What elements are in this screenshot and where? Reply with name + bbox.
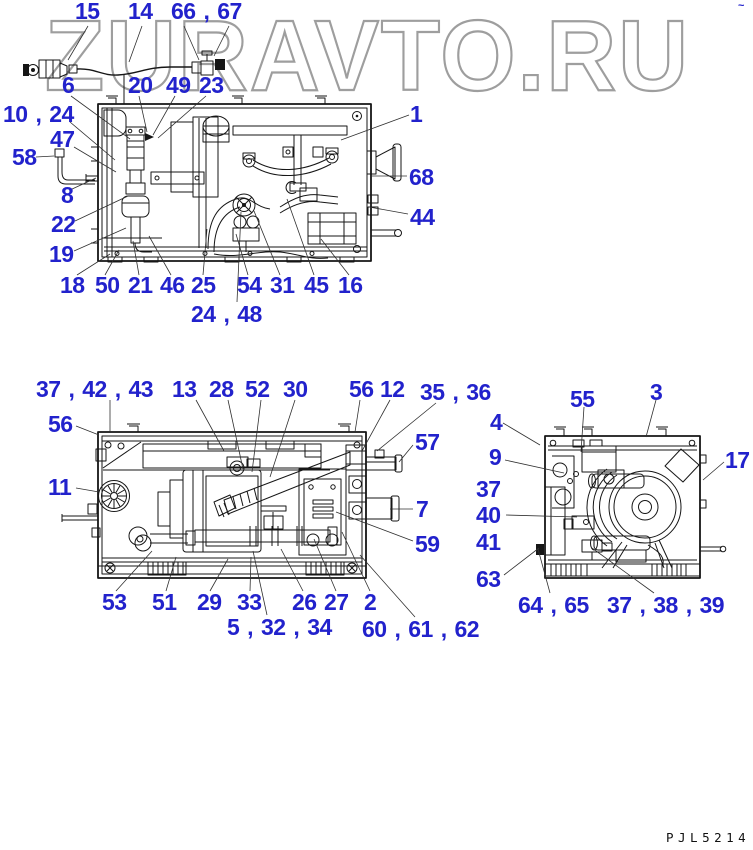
callout-45: 45 bbox=[304, 274, 329, 297]
callout-5-32-34: 5 , 32 , 34 bbox=[227, 616, 332, 639]
callout-27: 27 bbox=[324, 591, 349, 614]
callout-31: 31 bbox=[270, 274, 295, 297]
callout-47: 47 bbox=[50, 128, 75, 151]
parts-diagram-artwork: ZURAVTO.RU bbox=[0, 0, 753, 850]
callout-14: 14 bbox=[128, 0, 153, 23]
callout-25: 25 bbox=[191, 274, 216, 297]
callout-57: 57 bbox=[415, 431, 440, 454]
callout-11: 11 bbox=[48, 476, 71, 499]
unit-end-view bbox=[536, 427, 726, 578]
callout-22: 22 bbox=[51, 213, 76, 236]
callout-44: 44 bbox=[410, 206, 435, 229]
callout-64-65: 64 , 65 bbox=[518, 594, 589, 617]
callout-29: 29 bbox=[197, 591, 222, 614]
callout-21: 21 bbox=[128, 274, 153, 297]
callout-23: 23 bbox=[199, 74, 224, 97]
callout-49: 49 bbox=[166, 74, 191, 97]
unit-left-side-view bbox=[62, 424, 402, 578]
callout-16: 16 bbox=[338, 274, 363, 297]
callout-10-24: 10 , 24 bbox=[3, 103, 74, 126]
callout-6: 6 bbox=[62, 74, 74, 97]
callout-59: 59 bbox=[415, 533, 440, 556]
callout-60-61-62: 60 , 61 , 62 bbox=[362, 618, 479, 641]
callout-51: 51 bbox=[152, 591, 177, 614]
callout-3: 3 bbox=[650, 381, 662, 404]
callout-26: 26 bbox=[292, 591, 317, 614]
callout-19: 19 bbox=[49, 243, 74, 266]
callout-56-left: 56 bbox=[48, 413, 73, 436]
leader-lines bbox=[36, 26, 724, 617]
callout-33: 33 bbox=[237, 591, 262, 614]
callout-18: 18 bbox=[60, 274, 85, 297]
callout-46: 46 bbox=[160, 274, 185, 297]
callout-37-38-39: 37 , 38 , 39 bbox=[607, 594, 724, 617]
callout-7: 7 bbox=[416, 498, 428, 521]
callout-15: 15 bbox=[75, 0, 100, 23]
callout-41: 41 bbox=[476, 531, 501, 554]
callout-58: 58 bbox=[12, 146, 37, 169]
callout-13: 13 bbox=[172, 378, 197, 401]
callout-30: 30 bbox=[283, 378, 308, 401]
callout-20: 20 bbox=[128, 74, 153, 97]
callout-55: 55 bbox=[570, 388, 595, 411]
drawing-number: PJL5214 bbox=[666, 830, 750, 845]
callout-40: 40 bbox=[476, 504, 501, 527]
callout-56-right: 56 bbox=[349, 378, 374, 401]
callout-68: 68 bbox=[409, 166, 434, 189]
callout-35-36: 35 , 36 bbox=[420, 381, 491, 404]
callout-8: 8 bbox=[61, 184, 73, 207]
callout-1: 1 bbox=[410, 103, 422, 126]
callout-2: 2 bbox=[364, 591, 376, 614]
callout-28: 28 bbox=[209, 378, 234, 401]
callout-50: 50 bbox=[95, 274, 120, 297]
callout-66-67: 66 , 67 bbox=[171, 0, 242, 23]
corner-mark: ~ bbox=[738, 1, 744, 12]
callout-52: 52 bbox=[245, 378, 270, 401]
main-unit-side-view bbox=[86, 96, 402, 262]
callout-54: 54 bbox=[237, 274, 262, 297]
callout-24-48: 24 , 48 bbox=[191, 303, 262, 326]
callout-9: 9 bbox=[489, 446, 501, 469]
callout-4: 4 bbox=[490, 411, 502, 434]
callout-12: 12 bbox=[380, 378, 405, 401]
callout-17: 17 bbox=[725, 449, 750, 472]
callout-63: 63 bbox=[476, 568, 501, 591]
callout-53: 53 bbox=[102, 591, 127, 614]
hook-pipe-drawing bbox=[55, 149, 95, 184]
callout-37-42-43: 37 , 42 , 43 bbox=[36, 378, 153, 401]
callout-37-right: 37 bbox=[476, 478, 501, 501]
parts-diagram-page: ZURAVTO.RU bbox=[0, 0, 753, 850]
